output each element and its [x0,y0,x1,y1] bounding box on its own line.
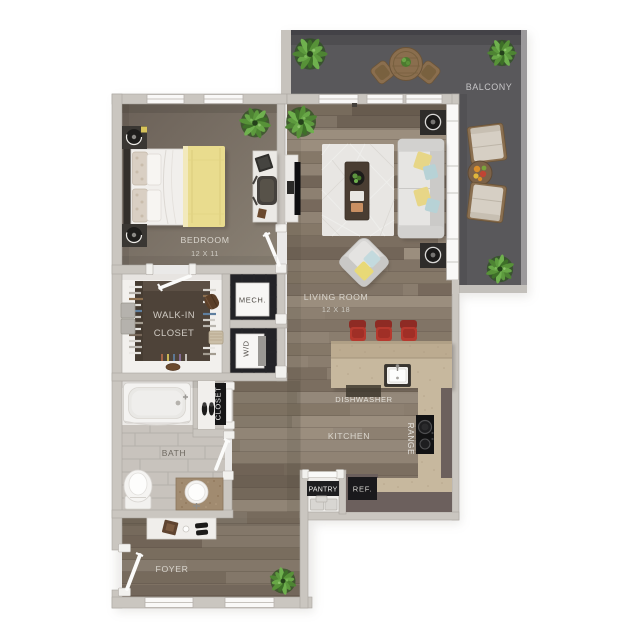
svg-text:CLOSET: CLOSET [154,328,194,339]
svg-text:MECH.: MECH. [239,296,266,305]
svg-text:KITCHEN: KITCHEN [328,431,370,441]
svg-text:LIVING ROOM: LIVING ROOM [304,292,369,302]
svg-text:DISHWASHER: DISHWASHER [335,395,393,404]
svg-text:12 X 18: 12 X 18 [322,305,350,314]
svg-text:REF.: REF. [353,485,372,494]
svg-text:WALK-IN: WALK-IN [153,310,195,321]
svg-text:CLOSET: CLOSET [214,387,223,421]
svg-text:PANTRY: PANTRY [309,487,338,494]
svg-text:FOYER: FOYER [156,564,189,574]
svg-text:BEDROOM: BEDROOM [180,235,229,245]
svg-text:12 X 11: 12 X 11 [191,249,219,258]
svg-text:BALCONY: BALCONY [466,82,513,92]
svg-text:RANGE: RANGE [406,423,415,455]
svg-text:BATH: BATH [162,448,186,458]
svg-text:W/D: W/D [242,340,251,356]
